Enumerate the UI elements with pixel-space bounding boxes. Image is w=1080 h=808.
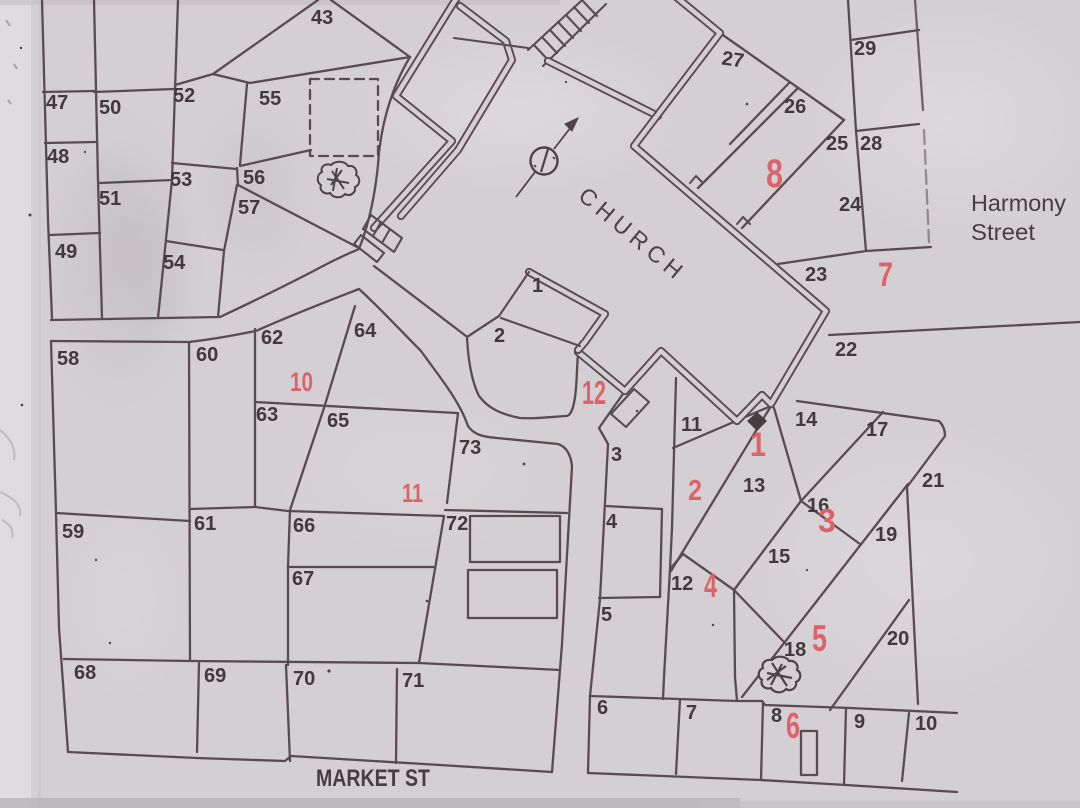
svg-text:11: 11 (402, 478, 423, 508)
svg-text:70: 70 (293, 668, 315, 690)
svg-text:68: 68 (74, 662, 96, 684)
svg-text:24: 24 (839, 194, 862, 216)
svg-text:54: 54 (163, 252, 186, 274)
svg-text:52: 52 (173, 85, 195, 107)
svg-text:66: 66 (293, 515, 315, 537)
svg-text:4: 4 (606, 511, 618, 533)
svg-text:15: 15 (768, 546, 790, 568)
svg-text:71: 71 (402, 670, 424, 692)
svg-text:23: 23 (805, 264, 827, 286)
svg-text:48: 48 (47, 146, 69, 168)
svg-text:51: 51 (99, 188, 121, 210)
svg-text:1: 1 (750, 426, 766, 464)
svg-text:Harmony: Harmony (971, 190, 1066, 216)
svg-text:53: 53 (170, 169, 192, 191)
svg-text:2: 2 (688, 475, 702, 507)
svg-text:8: 8 (771, 705, 782, 727)
svg-text:3: 3 (818, 502, 836, 539)
svg-text:73: 73 (459, 437, 481, 459)
svg-text:26: 26 (784, 96, 806, 118)
svg-text:13: 13 (743, 475, 765, 497)
svg-text:7: 7 (686, 702, 697, 724)
svg-text:7: 7 (878, 256, 893, 294)
svg-text:MARKET ST: MARKET ST (316, 765, 430, 792)
svg-text:63: 63 (256, 404, 278, 426)
svg-text:12: 12 (582, 374, 606, 411)
svg-text:10: 10 (290, 367, 313, 397)
svg-text:55: 55 (259, 88, 281, 110)
svg-text:19: 19 (875, 524, 897, 546)
svg-text:56: 56 (243, 167, 265, 189)
svg-text:25: 25 (826, 133, 848, 155)
svg-text:50: 50 (99, 97, 121, 119)
svg-text:21: 21 (922, 470, 944, 492)
svg-text:57: 57 (238, 197, 260, 219)
svg-text:43: 43 (311, 7, 333, 29)
svg-text:67: 67 (292, 568, 314, 590)
svg-text:49: 49 (55, 241, 77, 263)
svg-text:22: 22 (835, 339, 857, 361)
svg-text:4: 4 (704, 567, 717, 605)
svg-text:14: 14 (795, 409, 818, 431)
svg-text:11: 11 (681, 414, 702, 436)
svg-text:5: 5 (601, 604, 612, 626)
svg-text:64: 64 (354, 320, 377, 342)
svg-text:10: 10 (915, 713, 937, 735)
svg-text:6: 6 (786, 705, 800, 746)
svg-text:69: 69 (204, 665, 226, 687)
svg-text:17: 17 (866, 419, 888, 441)
svg-text:29: 29 (854, 38, 876, 60)
svg-text:47: 47 (46, 92, 68, 114)
svg-text:8: 8 (766, 152, 783, 196)
svg-text:65: 65 (327, 410, 349, 432)
svg-text:2: 2 (494, 325, 505, 347)
svg-text:20: 20 (887, 628, 909, 650)
svg-text:3: 3 (611, 444, 622, 466)
svg-text:18: 18 (784, 639, 806, 661)
svg-text:12: 12 (671, 573, 693, 595)
svg-text:6: 6 (597, 697, 608, 719)
svg-text:28: 28 (860, 133, 882, 155)
svg-text:58: 58 (57, 348, 79, 370)
svg-text:Street: Street (971, 219, 1036, 245)
svg-text:61: 61 (194, 513, 216, 535)
svg-text:1: 1 (532, 275, 543, 297)
svg-text:62: 62 (261, 327, 283, 349)
svg-text:59: 59 (62, 521, 84, 543)
svg-text:72: 72 (446, 513, 468, 535)
svg-text:9: 9 (854, 711, 865, 733)
svg-text:27: 27 (720, 48, 745, 73)
svg-text:60: 60 (196, 344, 218, 366)
svg-text:5: 5 (812, 618, 827, 659)
